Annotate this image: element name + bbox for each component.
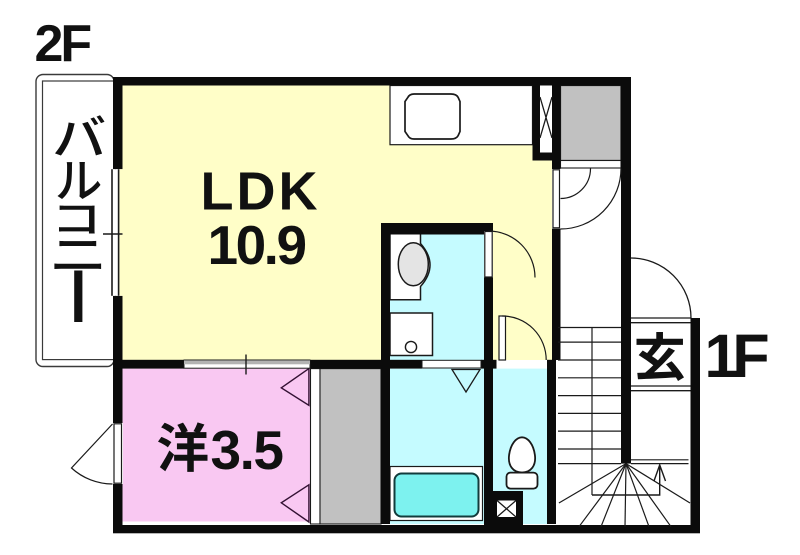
svg-text:1F: 1F (705, 322, 769, 390)
svg-text:10.9: 10.9 (208, 214, 306, 276)
svg-text:LDK: LDK (201, 162, 321, 222)
svg-text:3.5: 3.5 (211, 419, 284, 481)
svg-text:2F: 2F (35, 15, 91, 73)
